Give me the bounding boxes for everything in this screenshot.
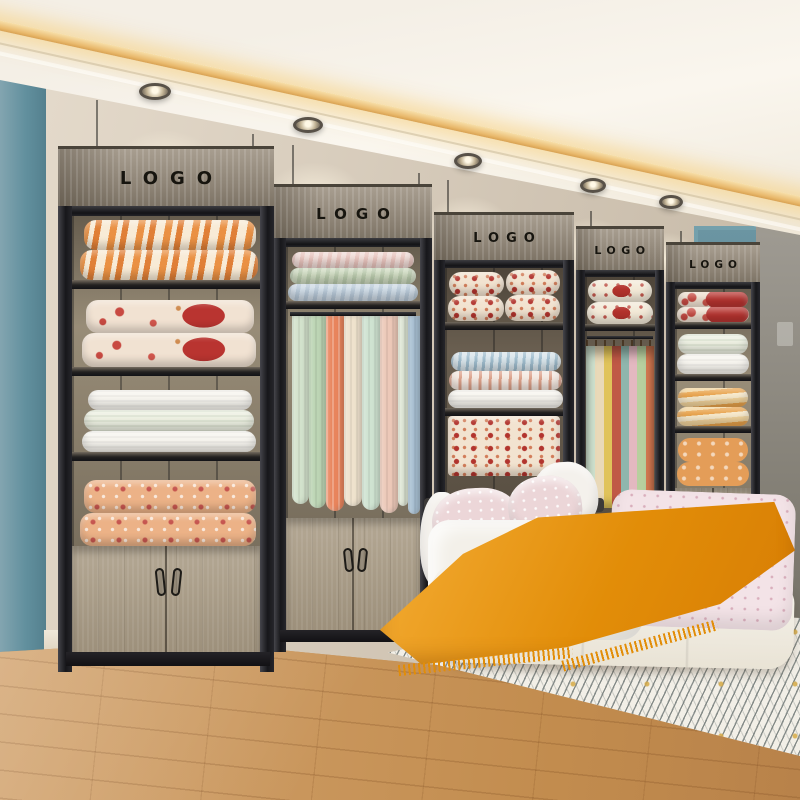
shelf-board xyxy=(675,426,751,433)
quilt-peach-pattern xyxy=(84,480,256,513)
unit5-top-beam xyxy=(666,282,760,289)
quilt-white-green xyxy=(678,334,748,354)
shelf-board xyxy=(445,322,563,330)
hanging-rod xyxy=(587,336,653,339)
suspension-wire xyxy=(252,134,254,146)
floral-fabric xyxy=(448,416,560,476)
fabric-drape-green xyxy=(309,316,326,508)
shelf-board xyxy=(72,452,260,461)
quilt-pink-striped xyxy=(449,371,562,390)
quilt-red-cream xyxy=(448,296,504,321)
quilt-red-diamond xyxy=(587,302,653,324)
unit5-header: LOGO xyxy=(666,242,760,284)
fabric-drape-mint xyxy=(292,316,309,504)
shelf-board xyxy=(675,374,751,381)
downlight-icon xyxy=(454,153,482,169)
quilt-red-floral xyxy=(677,307,749,322)
quilt-red-floral xyxy=(86,300,254,333)
unit2-logo-text: LOGO xyxy=(316,205,399,223)
orange-pillow xyxy=(677,462,749,486)
quilt-red-floral xyxy=(678,292,748,307)
quilt-sage xyxy=(290,268,416,284)
quilt-orange-striped xyxy=(80,250,258,280)
quilt-white xyxy=(677,354,749,374)
unit2-top-beam xyxy=(274,238,432,247)
unit1-plinth xyxy=(66,652,270,666)
quilt-orange-striped xyxy=(678,388,748,407)
quilt-blue xyxy=(288,284,418,301)
shelf-board xyxy=(675,322,751,329)
unit3-top-beam xyxy=(434,260,574,268)
unit4-header: LOGO xyxy=(576,226,664,272)
fabric-drape-mint xyxy=(362,316,380,510)
unit1-frame-column xyxy=(58,206,72,672)
quilt-orange-striped xyxy=(677,407,749,426)
downlight-icon xyxy=(580,178,606,193)
unit2-header: LOGO xyxy=(274,184,432,240)
suspension-wire xyxy=(292,145,294,184)
shelf-board xyxy=(445,408,563,416)
light-switch xyxy=(777,322,793,346)
orange-pillow xyxy=(678,438,748,462)
quilt-red-diamond xyxy=(588,280,652,302)
downlight-icon xyxy=(139,83,171,100)
quilt-blue-pattern xyxy=(451,352,561,371)
unit2-frame-column xyxy=(274,238,286,652)
quilt-white xyxy=(88,390,252,410)
quilt-white-green xyxy=(84,410,254,431)
fabric-drape-cream xyxy=(344,316,362,506)
quilt-red-cream xyxy=(505,295,560,321)
quilt-white xyxy=(82,431,256,452)
unit4-logo-text: LOGO xyxy=(594,244,650,257)
suspension-wire xyxy=(590,211,592,226)
quilt-orange-striped xyxy=(84,220,256,250)
suspension-wire xyxy=(418,173,420,184)
unit5-logo-text: LOGO xyxy=(689,259,742,271)
fabric-drape-coral xyxy=(326,316,344,511)
quilt-red-floral xyxy=(82,333,256,367)
suspension-wire xyxy=(96,100,98,146)
shelf-board xyxy=(72,367,260,376)
unit3-header: LOGO xyxy=(434,212,574,262)
showroom-scene: LOGO LOGO xyxy=(0,0,800,800)
downlight-icon xyxy=(293,117,323,133)
shelf-board xyxy=(72,280,260,289)
fabric-drape-blue xyxy=(408,316,420,514)
downlight-icon xyxy=(659,195,683,209)
quilt-red-cream xyxy=(449,272,504,296)
suspension-wire xyxy=(447,180,449,212)
shelf-board xyxy=(585,324,655,331)
unit4-top-beam xyxy=(576,270,664,277)
quilt-red-cream xyxy=(506,270,560,295)
shelf-board xyxy=(286,301,420,309)
unit1-header: LOGO xyxy=(58,146,274,208)
unit3-logo-text: LOGO xyxy=(473,231,542,246)
quilt-pink xyxy=(292,252,414,268)
quilt-white xyxy=(448,390,563,408)
unit1-cabinet xyxy=(72,546,260,656)
fabric-drape-pale xyxy=(398,316,408,506)
suspension-wire xyxy=(680,231,682,242)
unit1-top-beam xyxy=(58,206,274,216)
unit3-frame-column xyxy=(434,260,445,516)
quilt-peach-pattern xyxy=(80,513,256,546)
unit1-logo-text: LOGO xyxy=(120,168,224,189)
unit1-frame-column xyxy=(260,206,274,672)
unit4-frame-column xyxy=(655,270,664,516)
fabric-drape-pink xyxy=(380,316,398,513)
